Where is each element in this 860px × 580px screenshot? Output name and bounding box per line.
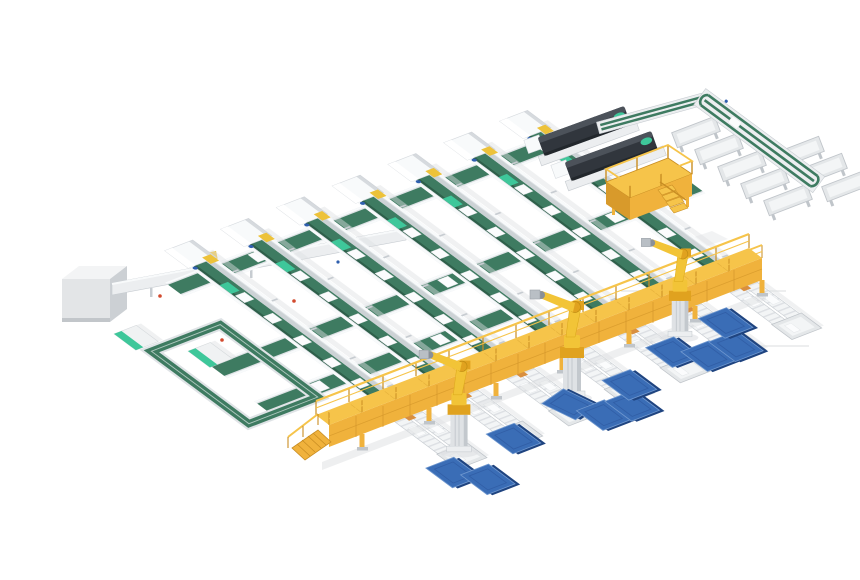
- factory-3d-render: Isometric 3D render of an automated conv…: [0, 0, 860, 580]
- factory-render-stage: Isometric 3D render of an automated conv…: [0, 0, 860, 580]
- takeaway-loop-line: [672, 86, 860, 222]
- side-tray-table: [764, 184, 815, 221]
